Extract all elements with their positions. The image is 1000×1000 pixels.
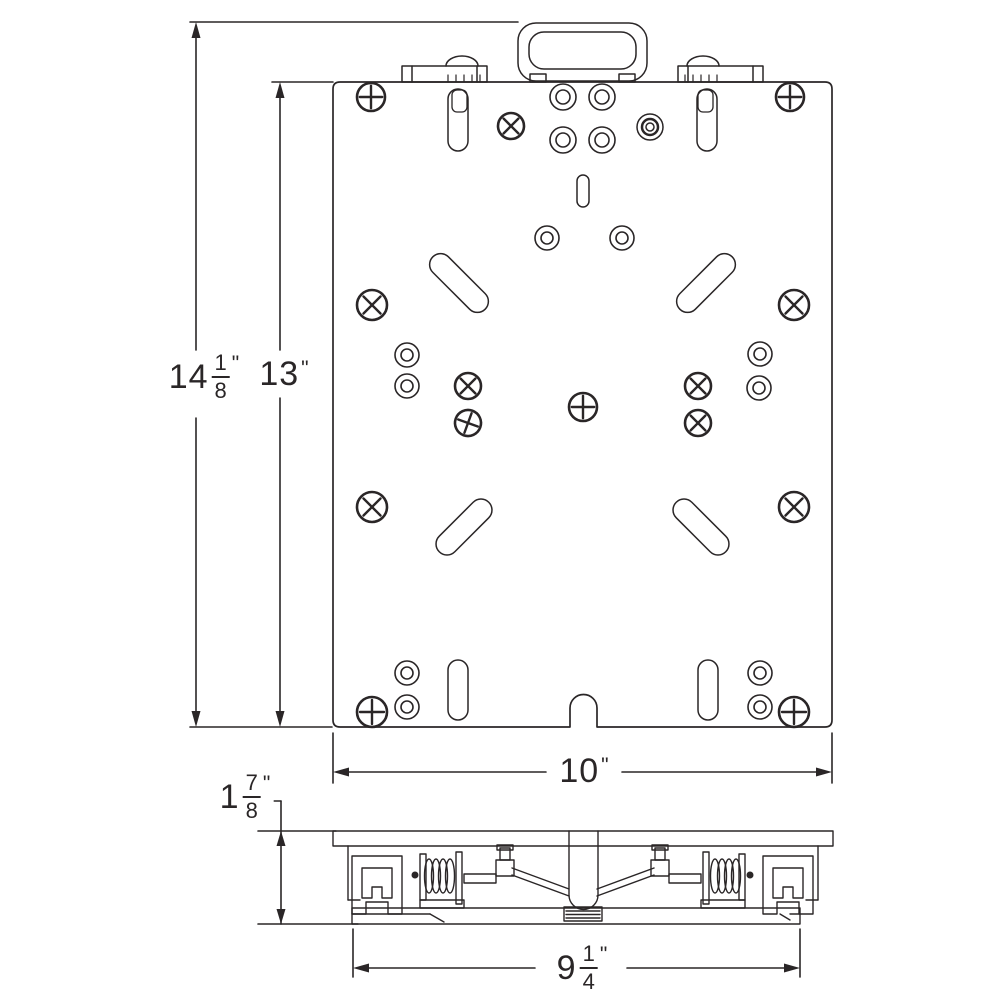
ring-hole [610, 226, 634, 250]
connector-left [464, 874, 496, 883]
dimension-arrows [192, 22, 833, 973]
ring-hole [395, 695, 419, 719]
ring-hole [748, 661, 772, 685]
prime-mark: " [301, 358, 308, 379]
dim-side-height: 1 7 8 " [217, 772, 274, 822]
ring-hole [589, 127, 615, 153]
phillips-screw [680, 405, 717, 442]
slot [425, 249, 493, 317]
slot [698, 660, 718, 720]
dim-value: 14 [169, 360, 209, 394]
ring-hole [535, 226, 559, 250]
dim-rail-width: 9 1 4 " [554, 943, 611, 993]
dim-value: 1 [220, 780, 240, 814]
dim-value: 9 [557, 951, 577, 985]
phillips-screw [680, 368, 717, 405]
technical-drawing: 14 1 8 " 13 " 10 " 1 7 8 " 9 1 4 " [0, 0, 1000, 1000]
ring-hole [550, 84, 576, 110]
ring-hole [748, 695, 772, 719]
slot [697, 89, 717, 151]
phillips-screw [451, 406, 484, 439]
slot-tab [698, 90, 713, 112]
phillips-screw [357, 83, 385, 111]
latch-right [678, 56, 763, 82]
ring-hole [747, 376, 771, 400]
dim-plate-height: 13 " [256, 357, 311, 391]
prime-mark: " [601, 755, 608, 776]
side-view [333, 831, 833, 924]
ring-hole [395, 374, 419, 398]
slot [431, 494, 496, 559]
slot [448, 660, 468, 720]
triple-ring-hole [637, 114, 663, 140]
prime-mark: " [263, 773, 270, 794]
dimension-lines [190, 22, 832, 977]
slot [668, 494, 733, 559]
slot [672, 249, 740, 317]
ring-hole [748, 342, 772, 366]
dim-overall-height: 14 1 8 " [166, 352, 243, 402]
lever-arm-left [496, 845, 569, 896]
phillips-screw [773, 486, 815, 528]
dim-value: 10 [559, 754, 599, 788]
drawing-svg [0, 0, 1000, 1000]
dim-value: 13 [259, 357, 299, 391]
latch-left [402, 56, 487, 82]
plate-features [351, 83, 815, 727]
slot [448, 89, 468, 151]
phillips-screw [776, 83, 804, 111]
handle [518, 23, 647, 82]
side-top-plate [333, 831, 833, 846]
dim-plate-width: 10 " [556, 754, 611, 788]
center-post [569, 831, 598, 910]
ring-hole [395, 343, 419, 367]
ring-hole [395, 661, 419, 685]
phillips-screw [569, 393, 597, 421]
spring-left [412, 852, 465, 908]
latch-dome [446, 56, 478, 66]
spring-right [701, 852, 754, 908]
phillips-screw [351, 284, 393, 326]
phillips-screw [779, 697, 809, 727]
connector-right [669, 874, 701, 883]
phillips-screw [357, 697, 387, 727]
phillips-screw [773, 284, 815, 326]
clamp-right [763, 856, 813, 914]
ring-hole [550, 127, 576, 153]
phillips-screw [450, 368, 487, 405]
prime-mark: " [600, 944, 607, 965]
prime-mark: " [232, 353, 239, 374]
slot-tab [452, 90, 467, 112]
lever-arm-right [597, 845, 669, 896]
latch-dome [687, 56, 719, 66]
clamp-left [352, 856, 402, 914]
phillips-screw [351, 486, 393, 528]
phillips-screw [493, 108, 530, 145]
slot [577, 175, 589, 207]
ring-hole [589, 84, 615, 110]
top-view [333, 23, 832, 727]
